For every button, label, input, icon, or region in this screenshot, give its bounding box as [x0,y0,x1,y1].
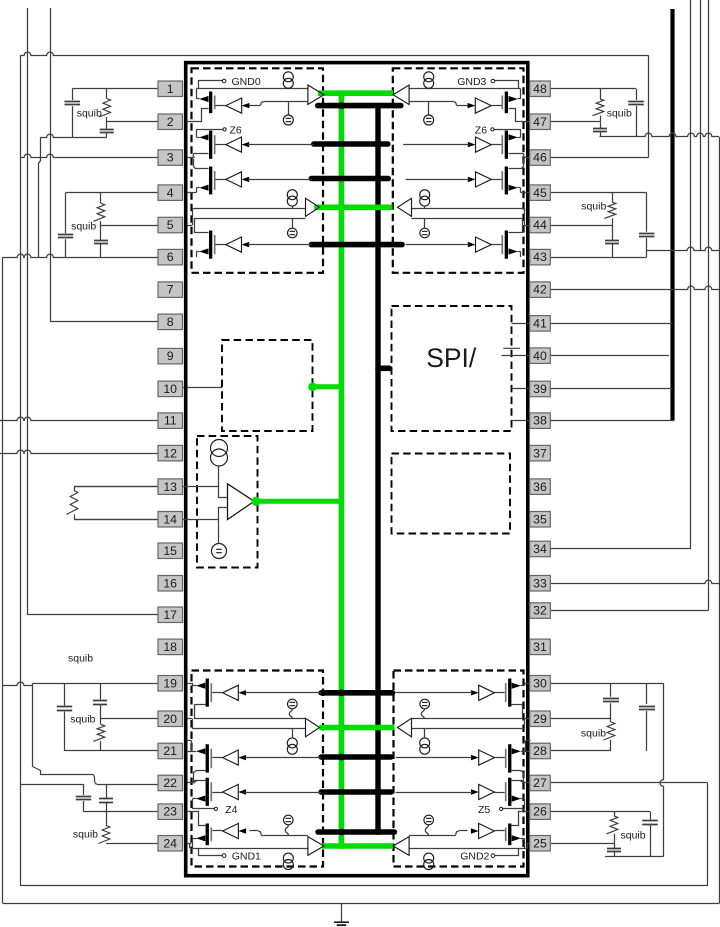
svg-text:19: 19 [163,676,177,690]
svg-text:46: 46 [533,151,547,165]
svg-text:11: 11 [164,414,177,428]
svg-text:31: 31 [533,640,547,654]
svg-text:2: 2 [167,115,174,129]
svg-text:Z6: Z6 [475,124,487,136]
svg-text:Z6: Z6 [230,124,242,136]
svg-text:GND3: GND3 [457,76,486,88]
svg-text:28: 28 [533,744,547,758]
svg-text:17: 17 [163,608,177,622]
svg-text:14: 14 [163,512,177,526]
svg-text:29: 29 [533,712,547,726]
svg-text:33: 33 [533,576,547,590]
svg-text:squib: squib [581,201,606,213]
svg-text:35: 35 [533,512,547,526]
svg-text:GND0: GND0 [232,76,261,88]
svg-text:12: 12 [163,446,177,460]
svg-text:10: 10 [163,382,177,396]
svg-text:27: 27 [533,776,547,790]
svg-text:37: 37 [533,446,547,460]
svg-text:47: 47 [533,115,547,129]
svg-text:26: 26 [533,805,547,819]
svg-text:43: 43 [533,250,547,264]
svg-text:16: 16 [163,576,177,590]
svg-text:4: 4 [167,186,174,200]
svg-text:5: 5 [167,218,174,232]
svg-text:45: 45 [533,186,547,200]
svg-text:40: 40 [533,349,547,363]
svg-text:20: 20 [163,712,177,726]
svg-text:13: 13 [163,480,177,494]
svg-text:squib: squib [70,714,95,726]
svg-text:Z5: Z5 [478,804,490,816]
svg-text:24: 24 [163,836,177,850]
svg-text:23: 23 [163,805,177,819]
svg-text:39: 39 [533,382,547,396]
svg-text:GND1: GND1 [232,851,261,863]
svg-text:1: 1 [167,82,174,96]
svg-text:squib: squib [77,108,102,120]
svg-text:22: 22 [163,776,177,790]
svg-text:3: 3 [167,151,174,165]
svg-text:squib: squib [71,221,96,233]
svg-text:squib: squib [581,728,606,740]
svg-text:squib: squib [73,829,98,841]
svg-text:6: 6 [167,250,174,264]
svg-text:7: 7 [167,283,174,297]
svg-text:8: 8 [167,315,174,329]
svg-text:squib: squib [621,830,646,842]
svg-text:32: 32 [533,604,547,618]
svg-text:squib: squib [68,653,93,665]
svg-text:9: 9 [167,349,174,363]
svg-text:36: 36 [533,480,547,494]
svg-text:38: 38 [533,414,547,428]
svg-text:18: 18 [163,640,177,654]
svg-text:30: 30 [533,676,547,690]
svg-text:44: 44 [533,218,547,232]
svg-text:15: 15 [163,544,177,558]
svg-text:GND2: GND2 [460,851,489,863]
svg-text:48: 48 [533,82,547,96]
svg-text:21: 21 [163,744,177,758]
svg-text:34: 34 [533,542,547,556]
svg-text:squib: squib [607,108,632,120]
svg-text:41: 41 [533,317,547,331]
svg-text:Z4: Z4 [225,804,237,816]
svg-text:25: 25 [533,836,547,850]
svg-text:SPI/: SPI/ [426,343,477,373]
svg-text:42: 42 [533,283,547,297]
